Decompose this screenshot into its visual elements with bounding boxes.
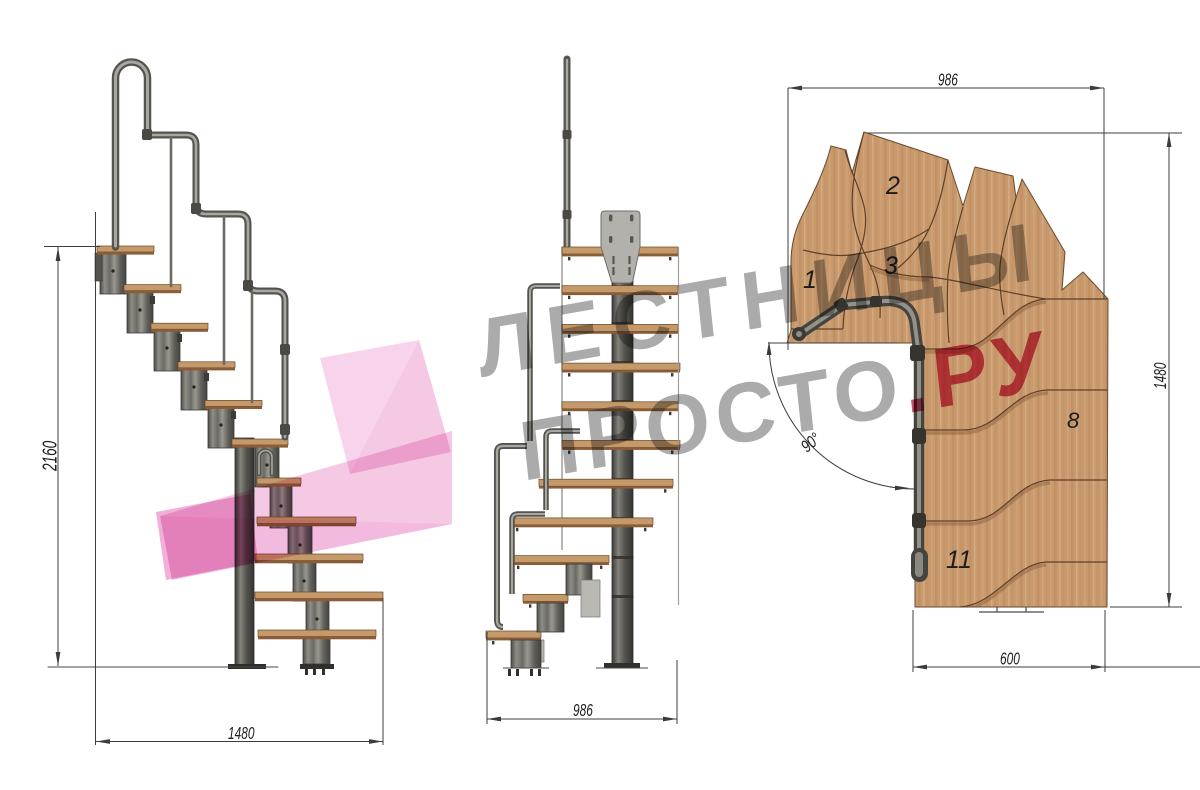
svg-text:1480: 1480 xyxy=(228,724,255,744)
svg-text:11: 11 xyxy=(946,546,972,574)
svg-text:2: 2 xyxy=(885,172,900,200)
svg-text:8: 8 xyxy=(1067,408,1080,433)
svg-text:1480: 1480 xyxy=(1151,362,1171,389)
svg-text:2160: 2160 xyxy=(39,440,61,471)
svg-text:986: 986 xyxy=(573,701,593,721)
svg-text:600: 600 xyxy=(1000,649,1020,669)
svg-text:986: 986 xyxy=(938,70,958,90)
